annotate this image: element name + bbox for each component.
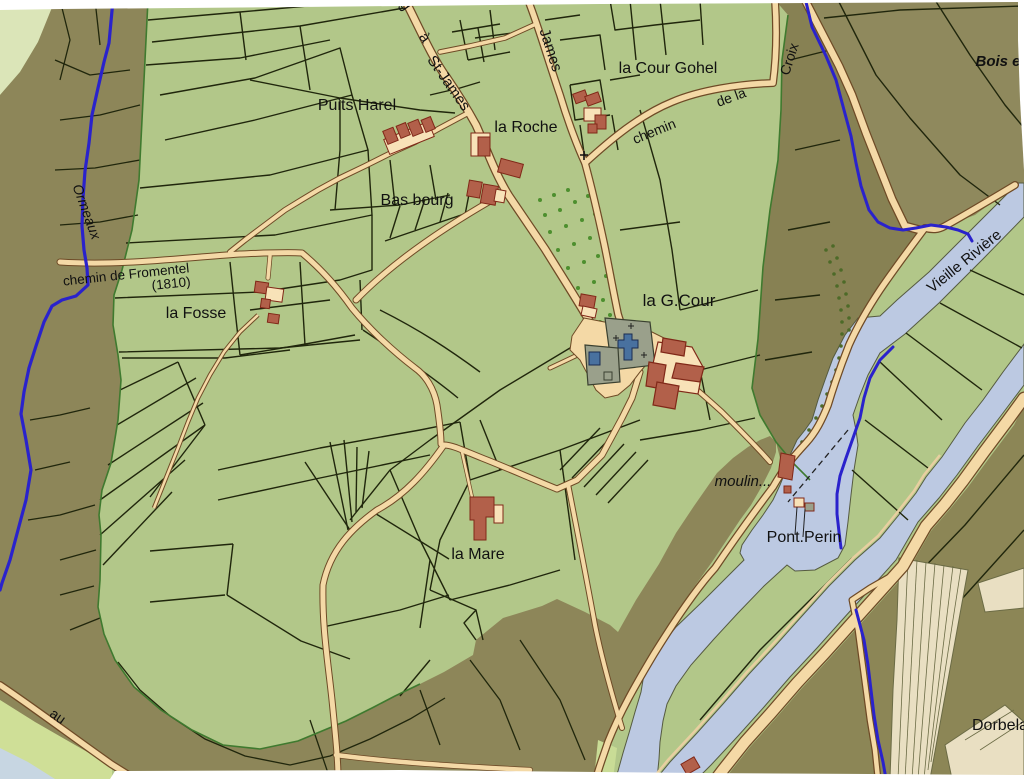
svg-text:Pont.Perin: Pont.Perin xyxy=(767,529,842,546)
svg-text:Bois e: Bois e xyxy=(975,53,1020,70)
svg-text:Puits Harel: Puits Harel xyxy=(318,97,396,114)
svg-text:la Mare: la Mare xyxy=(451,546,504,563)
svg-text:moulin...: moulin... xyxy=(715,473,772,490)
svg-text:la Roche: la Roche xyxy=(494,119,557,136)
svg-text:Bas bourg: Bas bourg xyxy=(381,192,454,209)
svg-text:la Cour Gohel: la Cour Gohel xyxy=(619,60,718,77)
svg-text:Dorbela: Dorbela xyxy=(972,717,1024,734)
svg-text:la Fosse: la Fosse xyxy=(166,305,227,322)
svg-text:la G.Cour: la G.Cour xyxy=(643,291,716,310)
